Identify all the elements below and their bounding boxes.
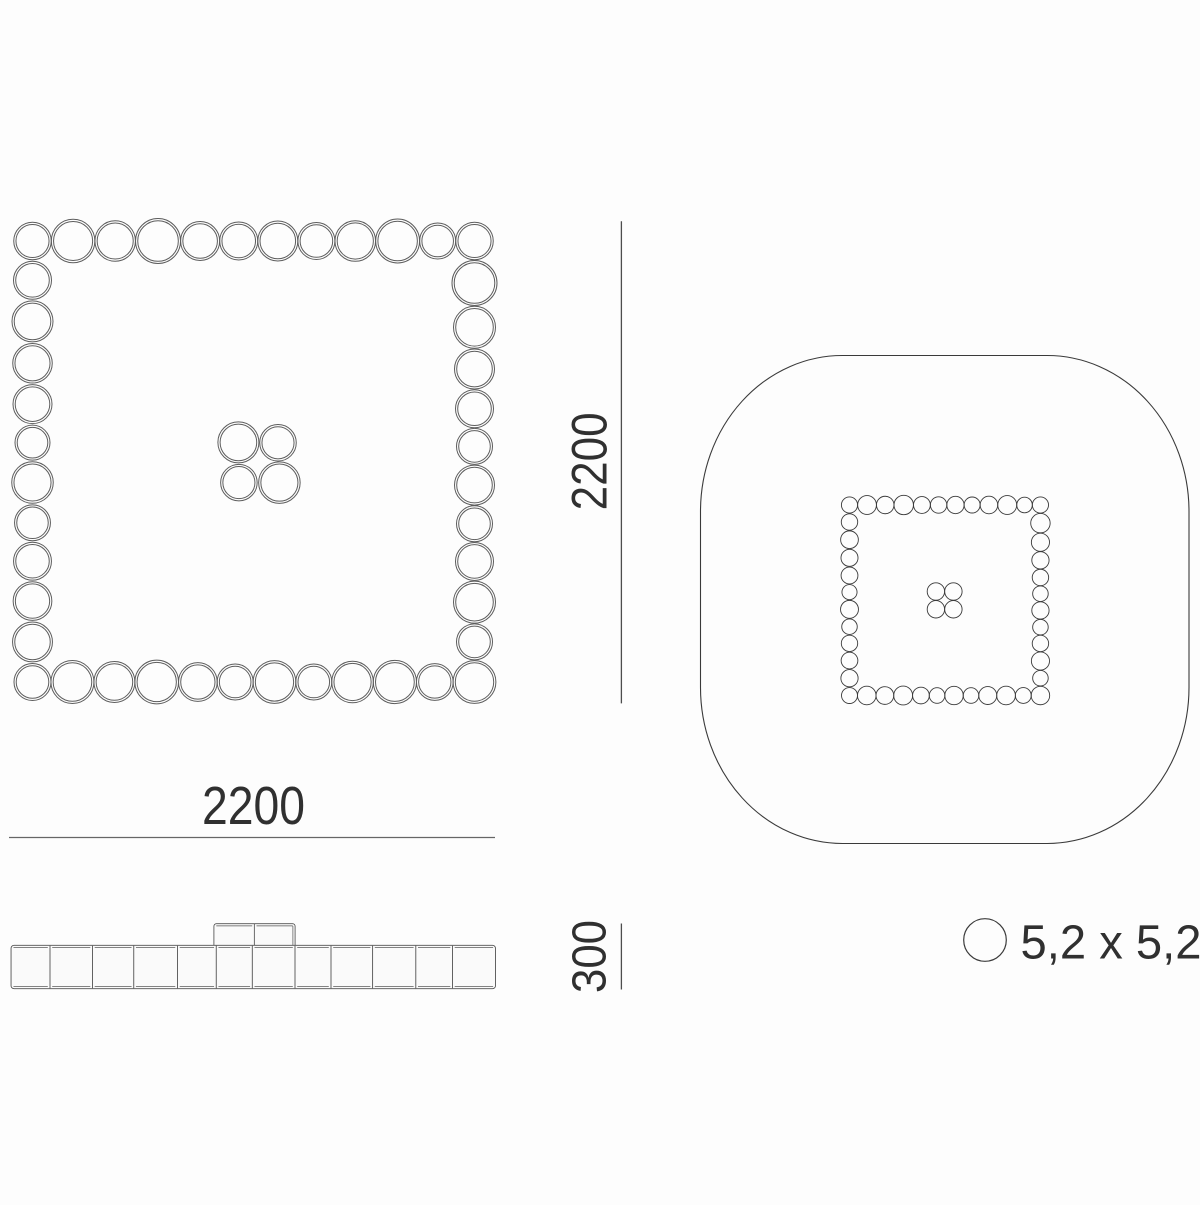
svg-text:2200: 2200	[562, 412, 618, 510]
svg-text:5,2 x 5,2: 5,2 x 5,2	[1021, 917, 1200, 970]
svg-text:300: 300	[564, 920, 617, 993]
svg-text:2200: 2200	[202, 776, 305, 836]
